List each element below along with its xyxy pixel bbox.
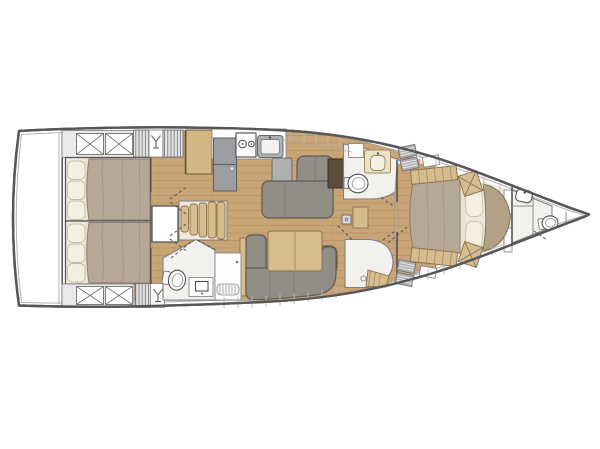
galley-counter-extension: [272, 158, 292, 184]
locker-row-top: [134, 130, 184, 157]
storage-hatch-icon: [106, 134, 133, 155]
cabinet-knob: [236, 261, 239, 264]
yacht-floor-plan: [0, 0, 600, 449]
glassware-locker-icon: [149, 130, 163, 157]
louvered-locker: [163, 130, 183, 157]
double-berth: [66, 221, 151, 284]
washbasin-icon: [189, 278, 213, 297]
pillow: [68, 224, 86, 243]
mast-foot-fitting: [342, 215, 351, 224]
louvered-locker: [134, 130, 150, 157]
wet-locker-icon: [151, 284, 165, 308]
pillow: [68, 264, 86, 283]
island-berth: [410, 178, 511, 253]
floor-plan-canvas: [0, 0, 600, 449]
companionway-stairs: [179, 201, 227, 240]
double-berth: [66, 158, 151, 222]
pillow: [68, 161, 86, 180]
stove-icon: [236, 133, 256, 157]
mast-step-hatch: [152, 206, 178, 242]
storage-hatch-icon: [77, 287, 104, 305]
pillow: [68, 181, 86, 200]
vanity-washbasin-icon: [365, 150, 391, 173]
storage-hatch-icon: [106, 287, 133, 305]
pillow: [68, 201, 86, 220]
louvered-locker: [136, 284, 151, 308]
passage-cabinet: [353, 207, 368, 228]
galley-cabinet: [186, 130, 212, 174]
louvered-vent: [217, 284, 239, 295]
storage-hatch-icon: [77, 134, 104, 155]
chart-table: [328, 159, 344, 188]
sink-icon: [258, 136, 284, 158]
dinette-table: [268, 231, 322, 271]
companionway: [152, 201, 227, 242]
refrigerator: [214, 138, 237, 191]
pillow: [68, 244, 86, 263]
aft-starboard-cabin: [62, 221, 165, 308]
head-locker: [349, 144, 364, 158]
